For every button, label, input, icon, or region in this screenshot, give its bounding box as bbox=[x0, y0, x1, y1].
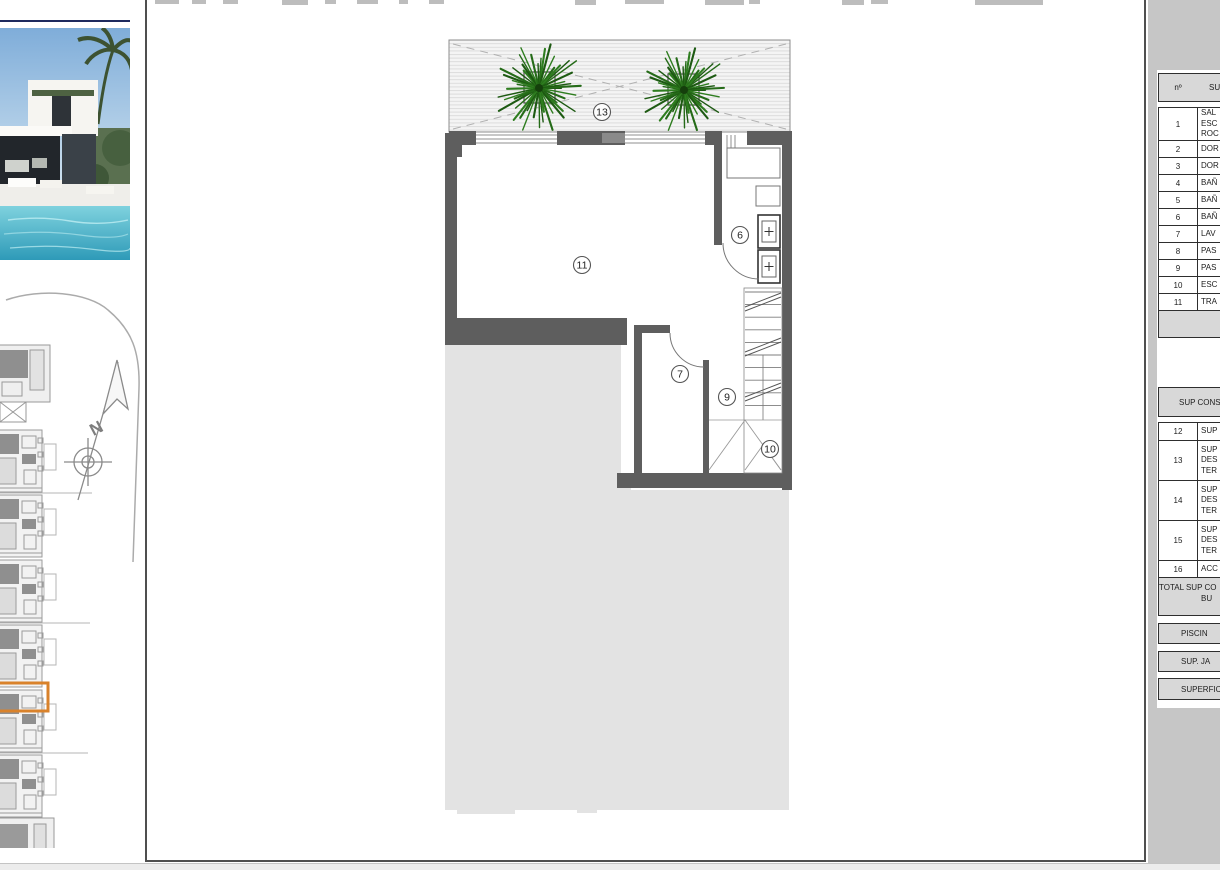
table-row: 4 BAÑ bbox=[1158, 174, 1220, 192]
site-block bbox=[0, 818, 56, 848]
sheet-frame: 13 11 6 7 9 bbox=[145, 0, 1146, 862]
sidebar: N bbox=[0, 0, 145, 870]
table-row: 7 LAV bbox=[1158, 225, 1220, 243]
row-label: PAS bbox=[1198, 246, 1220, 257]
row-number: 9 bbox=[1159, 260, 1198, 276]
row-label: DOR bbox=[1198, 161, 1220, 172]
row-label: LAV bbox=[1198, 229, 1220, 240]
row-label: ESC bbox=[1198, 280, 1220, 291]
table-row: 9 PAS bbox=[1158, 259, 1220, 277]
row-number: 3 bbox=[1159, 158, 1198, 174]
summary-label: PISCIN bbox=[1181, 629, 1208, 638]
bottom-strip bbox=[0, 863, 1220, 870]
row-label: BAÑ bbox=[1198, 195, 1220, 206]
table-row: 12 SUP bbox=[1158, 422, 1220, 441]
summary-label: SUP. JA bbox=[1181, 657, 1210, 666]
svg-text:13: 13 bbox=[596, 107, 608, 119]
svg-text:7: 7 bbox=[677, 369, 683, 381]
table-row: 14 SUP DES TER bbox=[1158, 480, 1220, 521]
total-bar: TOTAL SUP CO BU bbox=[1158, 577, 1220, 616]
room-label-11: 11 bbox=[574, 257, 591, 274]
svg-text:9: 9 bbox=[724, 392, 730, 404]
row-number: 6 bbox=[1159, 209, 1198, 225]
table-row: 11 TRA bbox=[1158, 293, 1220, 311]
summary-label: SUPERFIC bbox=[1181, 685, 1220, 694]
summary-bar-superficie: SUPERFIC bbox=[1158, 678, 1220, 700]
row-number: 12 bbox=[1159, 423, 1198, 440]
site-plan: N bbox=[0, 290, 142, 848]
table-row: 6 BAÑ bbox=[1158, 208, 1220, 226]
svg-text:10: 10 bbox=[764, 444, 776, 456]
table-row: 10 ESC bbox=[1158, 276, 1220, 294]
room-label-7: 7 bbox=[672, 366, 689, 383]
total-line1: TOTAL SUP CO bbox=[1159, 582, 1220, 593]
construction-table-header: SUP CONS bbox=[1158, 387, 1220, 417]
row-label: DOR bbox=[1198, 144, 1220, 155]
row-label: SUP bbox=[1198, 426, 1220, 437]
row-number: 11 bbox=[1159, 294, 1198, 310]
surface-table-header: nº SUP bbox=[1158, 73, 1220, 102]
row-number: 5 bbox=[1159, 192, 1198, 208]
table-row: 16 ACC bbox=[1158, 560, 1220, 578]
row-label: SUP DES TER bbox=[1198, 525, 1220, 557]
floor-plan: 13 11 6 7 9 bbox=[147, 0, 1144, 858]
col-sup-header: SUP bbox=[1197, 83, 1220, 92]
photo-divider-line bbox=[0, 20, 130, 22]
surface-table: nº SUP 1 SAL ESC ROC 2 DOR 3 DOR 4 BAÑ 5 bbox=[1158, 73, 1220, 338]
roof-terrace bbox=[449, 40, 790, 132]
summary-bar-piscina: PISCIN bbox=[1158, 623, 1220, 644]
construction-table: SUP CONS 12 SUP 13 SUP DES TER 14 SUP DE… bbox=[1158, 387, 1220, 616]
row-number: 16 bbox=[1159, 561, 1198, 577]
room-label-9: 9 bbox=[719, 389, 736, 406]
total-line2: BU bbox=[1159, 593, 1220, 604]
table-row: 5 BAÑ bbox=[1158, 191, 1220, 209]
svg-text:11: 11 bbox=[577, 260, 588, 272]
villa-photo bbox=[0, 28, 130, 260]
row-number: 15 bbox=[1159, 521, 1198, 560]
row-number: 10 bbox=[1159, 277, 1198, 293]
col-num-header: nº bbox=[1159, 83, 1197, 92]
row-label: SUP DES TER bbox=[1198, 445, 1220, 477]
page-root: N bbox=[0, 0, 1220, 870]
room-label-13: 13 bbox=[594, 104, 611, 121]
surface-panel: nº SUP 1 SAL ESC ROC 2 DOR 3 DOR 4 BAÑ 5 bbox=[1148, 0, 1220, 864]
table-row: 15 SUP DES TER bbox=[1158, 520, 1220, 561]
table-row: 1 SAL ESC ROC bbox=[1158, 107, 1220, 141]
row-number: 13 bbox=[1159, 441, 1198, 480]
site-block bbox=[0, 345, 50, 422]
row-label: TRA bbox=[1198, 297, 1220, 308]
row-number: 4 bbox=[1159, 175, 1198, 191]
north-arrow-icon: N bbox=[64, 360, 128, 500]
summary-bar-jardin: SUP. JA bbox=[1158, 651, 1220, 672]
table-subtotal-bar bbox=[1158, 310, 1220, 338]
row-label: BAÑ bbox=[1198, 212, 1220, 223]
row-number: 2 bbox=[1159, 141, 1198, 157]
table-row: 2 DOR bbox=[1158, 140, 1220, 158]
table-row: 8 PAS bbox=[1158, 242, 1220, 260]
room-label-10: 10 bbox=[762, 441, 779, 458]
room-label-6: 6 bbox=[732, 227, 749, 244]
svg-text:N: N bbox=[86, 417, 106, 440]
row-label: ACC bbox=[1198, 564, 1220, 575]
row-number: 14 bbox=[1159, 481, 1198, 520]
row-number: 8 bbox=[1159, 243, 1198, 259]
row-label: SAL ESC ROC bbox=[1198, 108, 1220, 140]
row-label: PAS bbox=[1198, 263, 1220, 274]
row-number: 1 bbox=[1159, 108, 1198, 140]
table-row: 13 SUP DES TER bbox=[1158, 440, 1220, 481]
svg-text:6: 6 bbox=[737, 230, 743, 242]
cropped-text-marks bbox=[155, 0, 1043, 5]
row-number: 7 bbox=[1159, 226, 1198, 242]
row-label: BAÑ bbox=[1198, 178, 1220, 189]
table-row: 3 DOR bbox=[1158, 157, 1220, 175]
row-label: SUP DES TER bbox=[1198, 485, 1220, 517]
